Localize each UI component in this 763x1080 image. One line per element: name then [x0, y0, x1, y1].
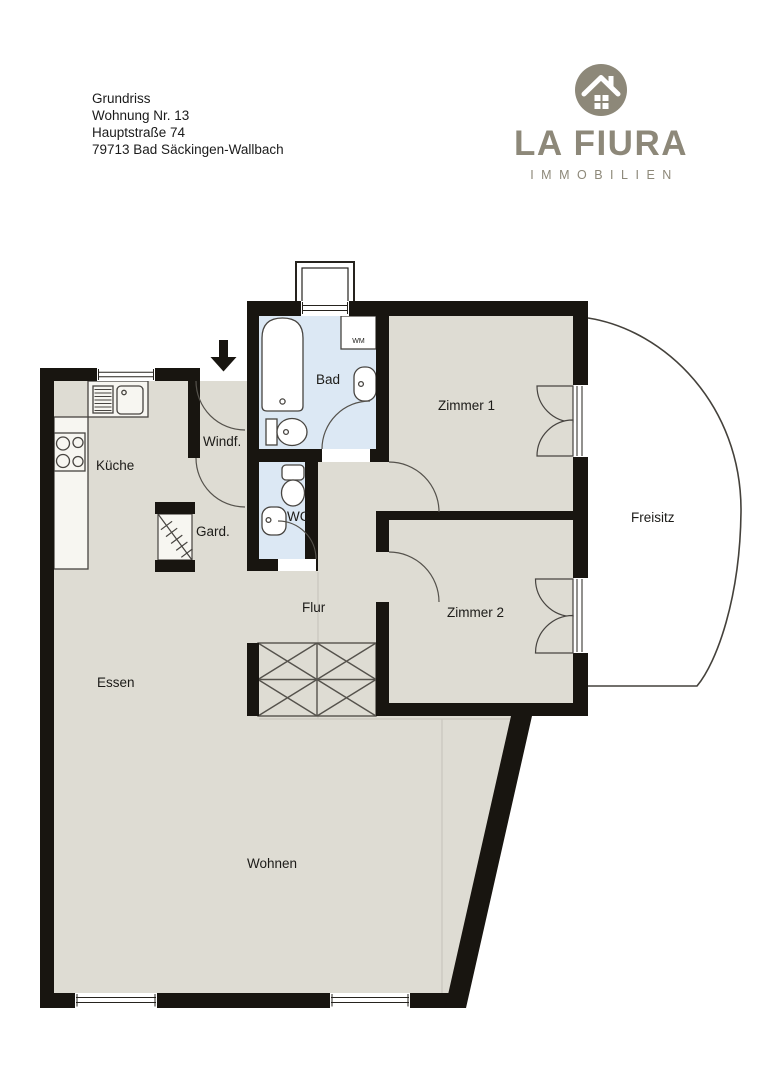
room-label-zimmer1: Zimmer 1 [438, 398, 495, 413]
freisitz-outline [588, 318, 741, 686]
entrance-arrow [211, 340, 237, 372]
zimmer1-french-door-opening [573, 385, 588, 457]
wall-shaft-stub [247, 643, 259, 716]
kitchen-sink [117, 386, 143, 414]
wall-left [40, 368, 54, 1008]
room-label-windfang: Windf. [203, 434, 241, 449]
room-label-essen: Essen [97, 675, 135, 690]
label-washing-machine: WM [352, 338, 365, 345]
room-label-wc: WC [287, 509, 310, 524]
wardrobe [158, 514, 193, 560]
bathroom-window [301, 301, 349, 316]
room-label-kueche: Küche [96, 458, 134, 473]
wc-toilet-tank [282, 465, 304, 480]
bad-toilet-tank [266, 419, 277, 445]
wall-right-middle [573, 457, 588, 578]
living-window-left [75, 993, 157, 1008]
wc-toilet-bowl [282, 480, 305, 506]
wall-mid-upper [376, 301, 389, 462]
floorplan-page: Grundriss Wohnung Nr. 13 Hauptstraße 74 … [0, 0, 763, 1080]
wall-zimmer2-bottom [389, 703, 588, 716]
window-well-box [296, 262, 354, 302]
zimmer2-french-door-opening [573, 578, 588, 653]
wall-gard-stub-bottom [155, 560, 195, 572]
wall-right-upper [573, 301, 588, 385]
sink-tap [122, 390, 126, 394]
wall-zimmer-divider [376, 511, 588, 520]
installation-shaft [258, 643, 376, 716]
bad-washbasin [354, 367, 376, 401]
kitchen-window [97, 368, 155, 381]
wall-top [247, 301, 588, 316]
bad-door-opening [322, 449, 370, 462]
wall-mid-lower [376, 602, 389, 716]
bad-toilet-bowl [277, 419, 307, 446]
room-label-garderobe: Gard. [196, 524, 230, 539]
wall-gard-stub-top [155, 502, 195, 514]
room-label-bad: Bad [316, 372, 340, 387]
room-label-flur: Flur [302, 600, 326, 615]
bathtub [262, 318, 303, 411]
drainer-lines [95, 390, 112, 411]
wall-kitchen-windfang [188, 368, 200, 458]
room-label-freisitz: Freisitz [631, 510, 675, 525]
room-label-zimmer2: Zimmer 2 [447, 605, 504, 620]
living-window-right [330, 993, 410, 1008]
room-label-wohnen: Wohnen [247, 856, 297, 871]
floorplan-drawing: Küche Windf. Gard. Bad WC Zimmer 1 Zimme… [0, 0, 763, 1080]
wall-bad-left [247, 301, 259, 571]
wc-door-opening [278, 559, 316, 571]
